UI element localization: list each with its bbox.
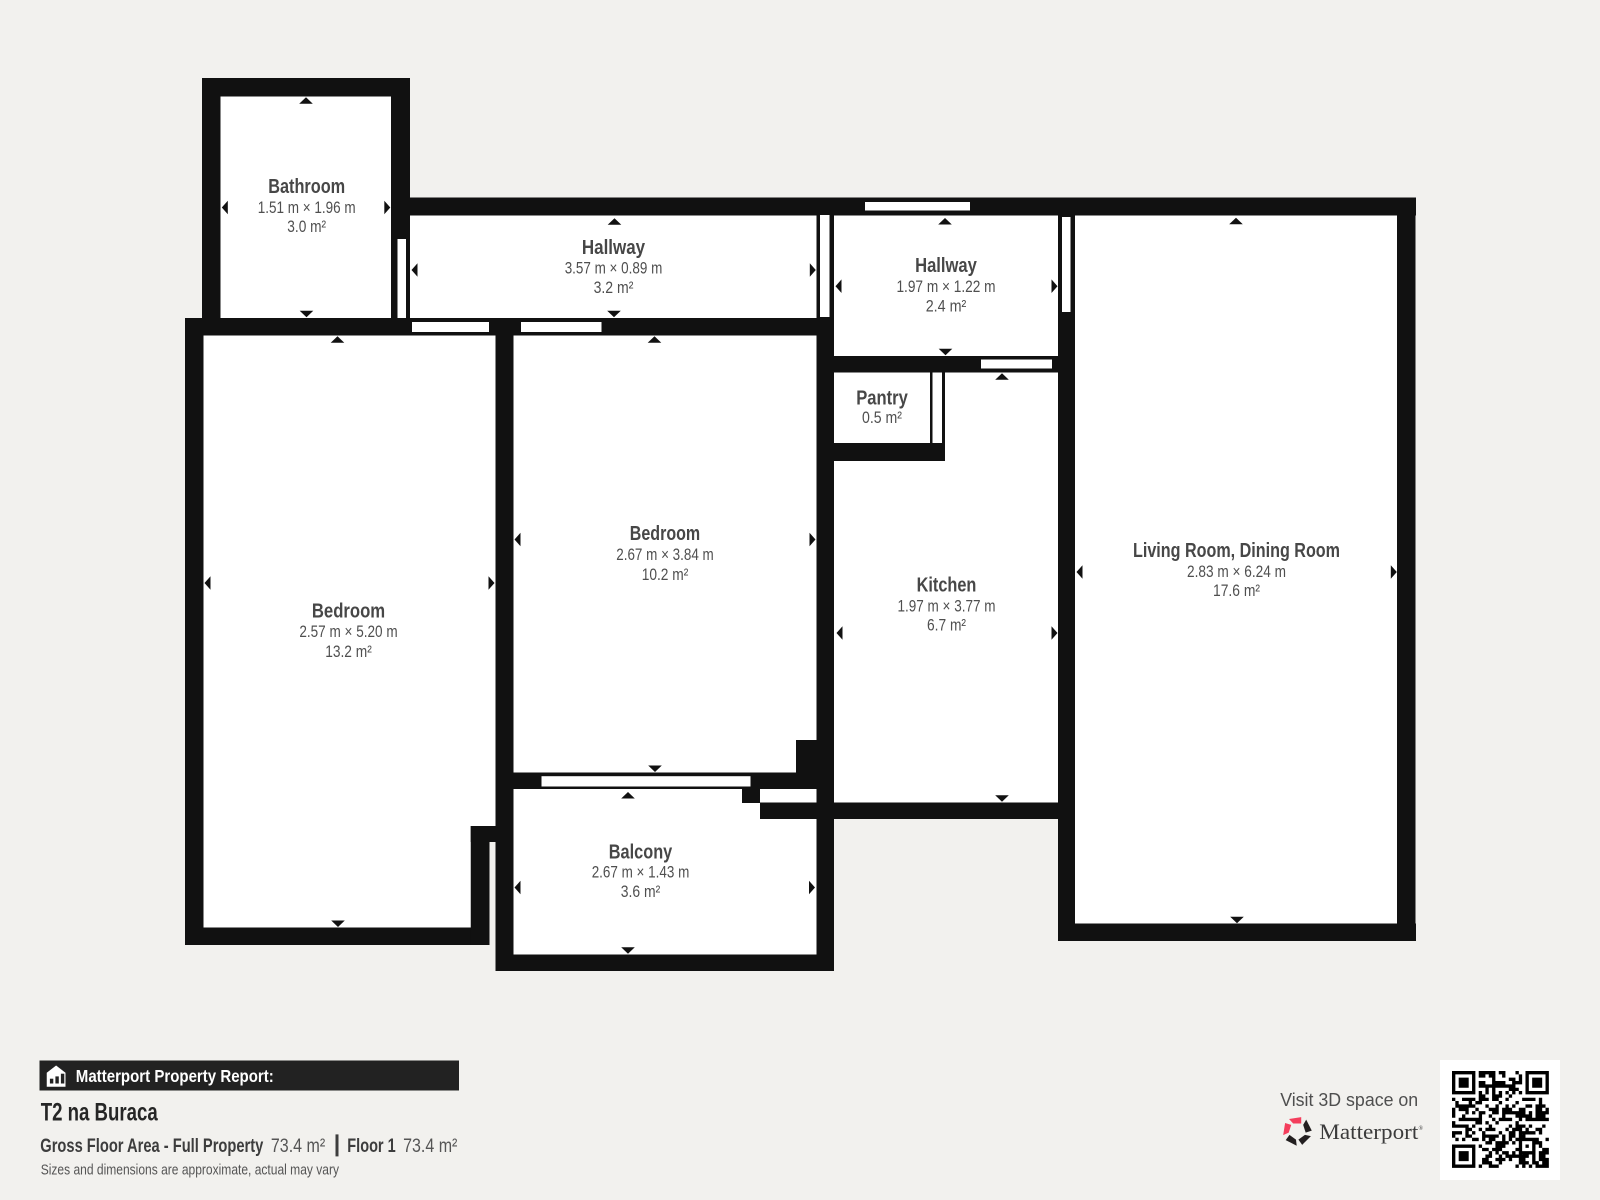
svg-text:3.0 m²: 3.0 m² — [287, 217, 326, 236]
svg-text:Hallway: Hallway — [915, 255, 978, 277]
svg-text:3.57 m × 0.89 m: 3.57 m × 0.89 m — [565, 258, 663, 277]
svg-text:2.4 m²: 2.4 m² — [926, 297, 967, 316]
svg-text:3.2 m²: 3.2 m² — [594, 278, 634, 297]
svg-text:13.2 m²: 13.2 m² — [325, 642, 372, 661]
svg-text:1.97 m × 1.22 m: 1.97 m × 1.22 m — [896, 277, 995, 296]
svg-text:Sizes and dimensions are appro: Sizes and dimensions are approximate, ac… — [41, 1162, 340, 1179]
svg-text:Balcony: Balcony — [609, 842, 673, 864]
svg-text:6.7 m²: 6.7 m² — [927, 616, 966, 635]
svg-text:2.83 m × 6.24 m: 2.83 m × 6.24 m — [1187, 562, 1286, 581]
svg-text:Floor 1: Floor 1 — [347, 1136, 396, 1157]
svg-text:Matterport Property Report:: Matterport Property Report: — [76, 1066, 274, 1086]
svg-text:73.4 m²: 73.4 m² — [271, 1136, 325, 1157]
svg-text:Pantry: Pantry — [856, 388, 908, 410]
svg-text:Bathroom: Bathroom — [268, 176, 345, 198]
svg-text:2.57 m × 5.20 m: 2.57 m × 5.20 m — [299, 622, 397, 641]
svg-text:Visit 3D space on: Visit 3D space on — [1280, 1090, 1418, 1110]
svg-text:3.6 m²: 3.6 m² — [621, 882, 661, 901]
svg-text:17.6 m²: 17.6 m² — [1213, 581, 1260, 600]
svg-text:0.5 m²: 0.5 m² — [862, 408, 902, 427]
svg-text:Bedroom: Bedroom — [312, 600, 385, 622]
svg-text:2.67 m × 1.43 m: 2.67 m × 1.43 m — [592, 863, 690, 882]
svg-text:1.51 m × 1.96 m: 1.51 m × 1.96 m — [258, 198, 356, 217]
svg-text:2.67 m × 3.84 m: 2.67 m × 3.84 m — [616, 545, 714, 564]
svg-text:®: ® — [1419, 1125, 1424, 1132]
svg-text:73.4 m²: 73.4 m² — [403, 1136, 457, 1157]
svg-text:10.2 m²: 10.2 m² — [642, 565, 689, 584]
svg-text:Hallway: Hallway — [582, 237, 646, 259]
svg-text:1.97 m × 3.77 m: 1.97 m × 3.77 m — [898, 596, 996, 615]
svg-text:Gross Floor Area - Full Proper: Gross Floor Area - Full Property — [40, 1136, 263, 1157]
svg-text:Living Room, Dining Room: Living Room, Dining Room — [1133, 540, 1340, 562]
svg-text:T2 na Buraca: T2 na Buraca — [41, 1099, 159, 1127]
svg-text:Kitchen: Kitchen — [917, 575, 977, 597]
svg-text:Matterport: Matterport — [1319, 1119, 1418, 1144]
svg-text:Bedroom: Bedroom — [630, 523, 700, 545]
